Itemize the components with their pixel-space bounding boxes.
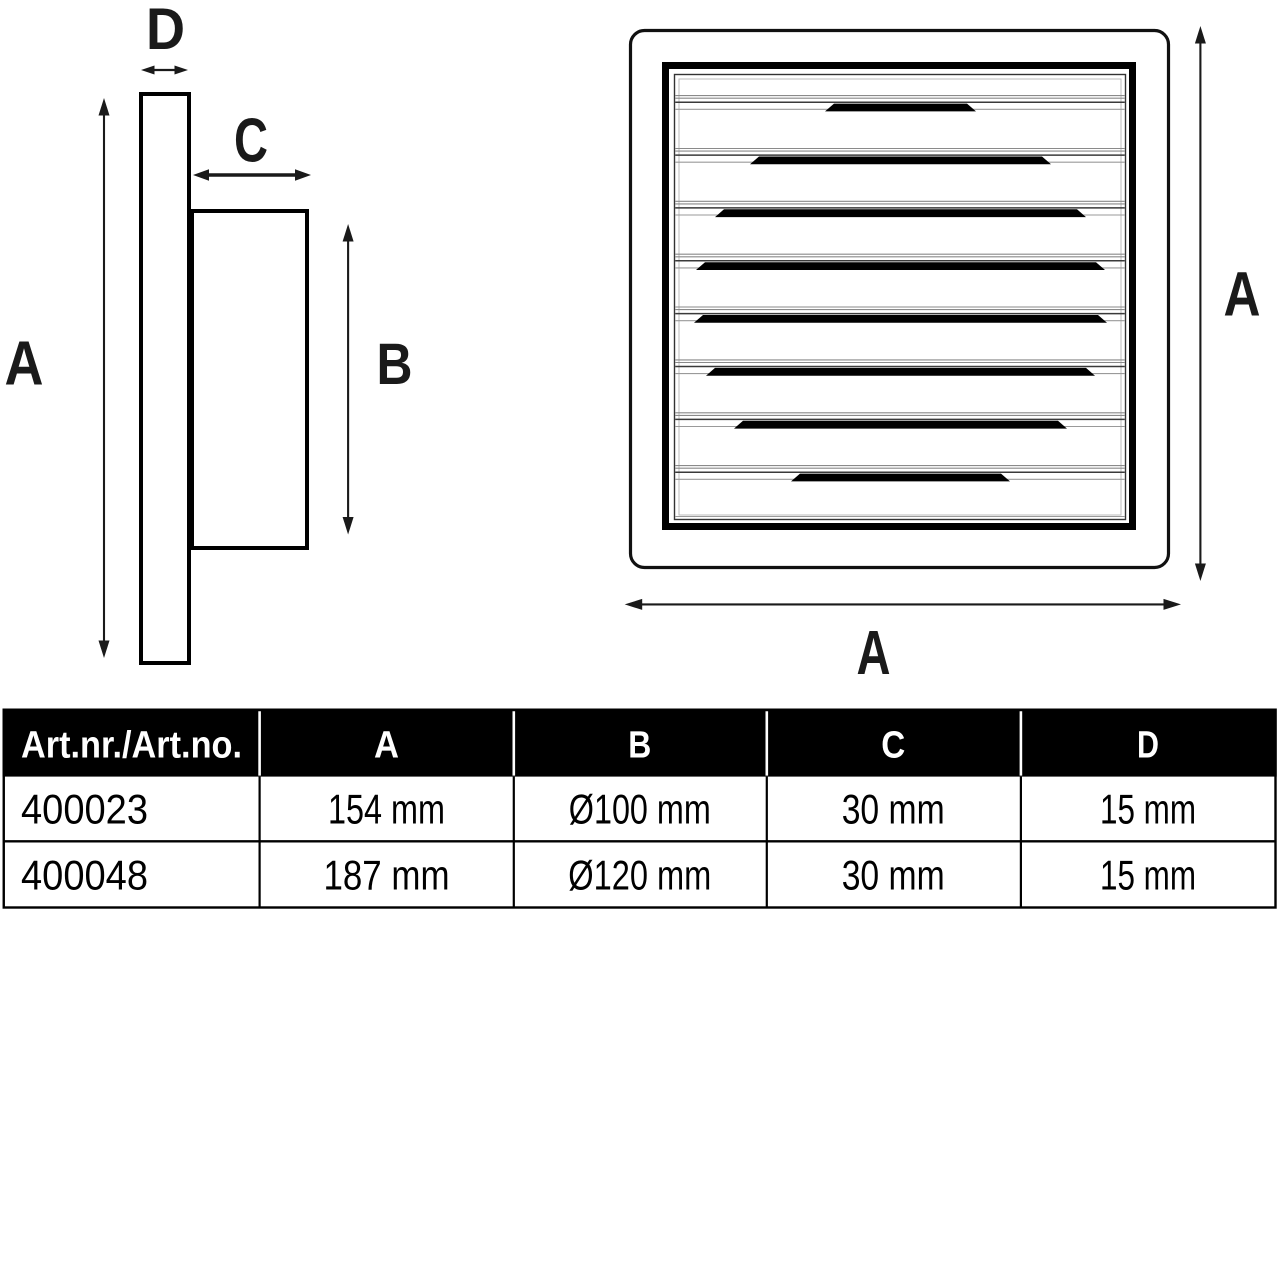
svg-text:154 mm: 154 mm: [328, 786, 445, 833]
svg-text:C: C: [881, 725, 905, 767]
svg-text:A: A: [374, 725, 399, 767]
svg-text:187 mm: 187 mm: [324, 852, 450, 899]
svg-text:400023: 400023: [21, 786, 148, 833]
svg-text:400048: 400048: [21, 852, 148, 899]
svg-text:D: D: [146, 0, 185, 62]
svg-text:30 mm: 30 mm: [842, 786, 945, 833]
svg-text:Ø100 mm: Ø100 mm: [569, 786, 711, 833]
svg-text:Ø120 mm: Ø120 mm: [568, 852, 711, 899]
svg-text:A: A: [857, 619, 891, 688]
svg-text:Art.nr./Art.no.: Art.nr./Art.no.: [21, 725, 242, 767]
svg-text:15 mm: 15 mm: [1100, 786, 1196, 833]
svg-text:30 mm: 30 mm: [842, 852, 945, 899]
svg-text:A: A: [5, 330, 44, 399]
svg-text:15 mm: 15 mm: [1100, 852, 1196, 899]
svg-text:A: A: [1224, 260, 1261, 330]
svg-text:B: B: [628, 725, 651, 767]
svg-text:B: B: [377, 332, 413, 397]
svg-text:D: D: [1137, 725, 1159, 767]
svg-text:C: C: [234, 107, 268, 176]
